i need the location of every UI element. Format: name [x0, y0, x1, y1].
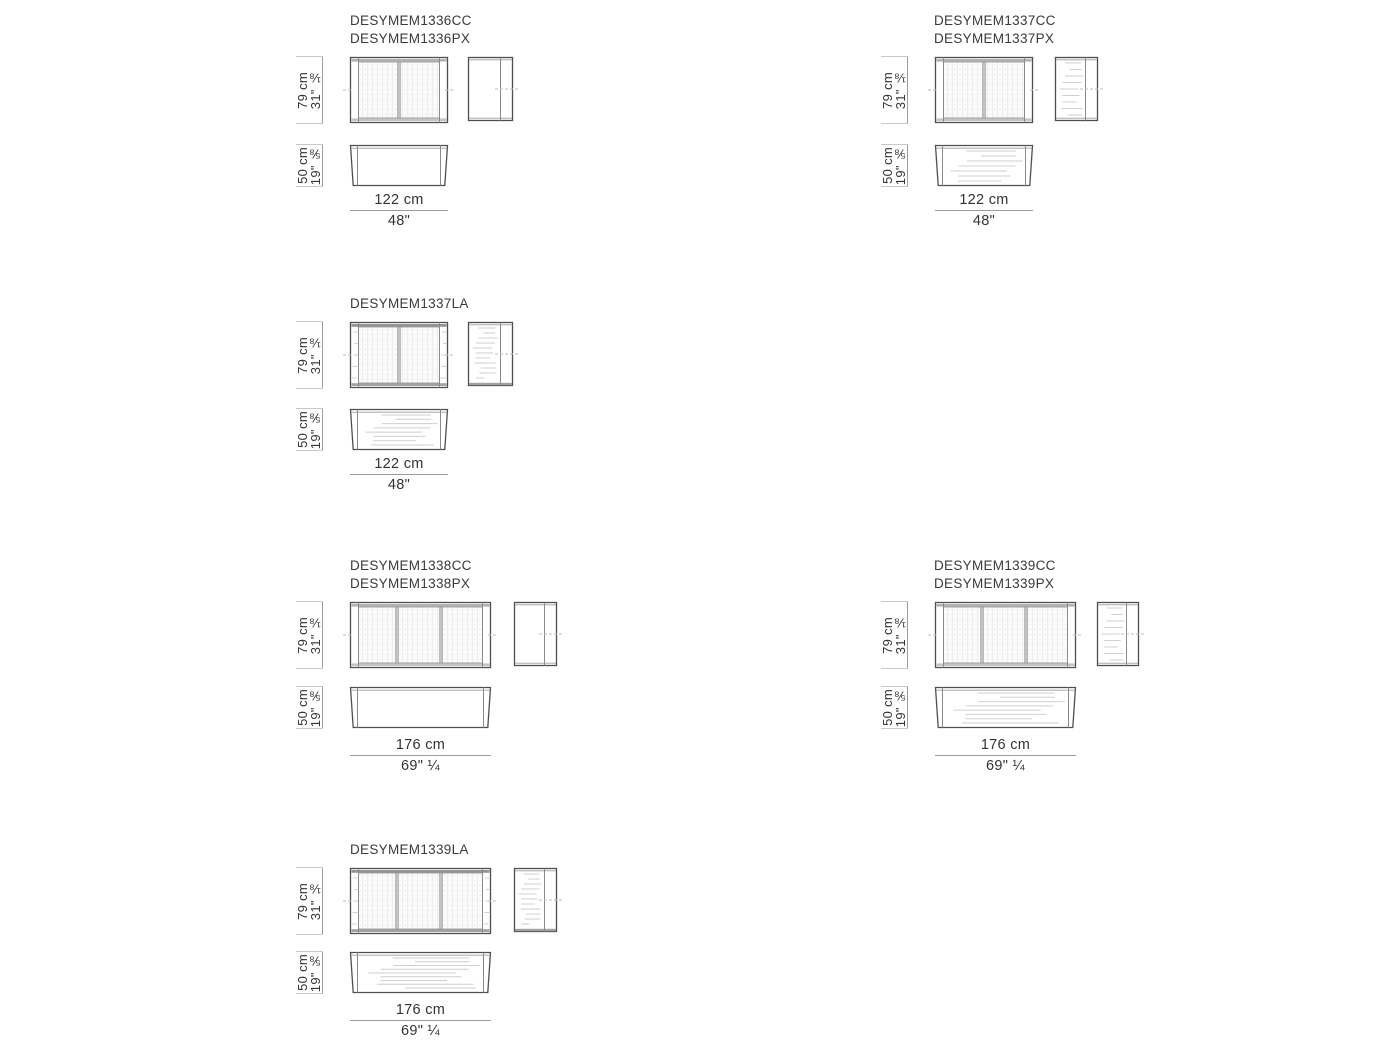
product-codes: DESYMEM1337CC DESYMEM1337PX: [934, 12, 1056, 48]
product-code: DESYMEM1337LA: [350, 295, 469, 313]
dimension-line: [907, 602, 908, 668]
top-view-drawing: [350, 409, 448, 450]
width-dimension: 176 cm 69" ¼: [350, 1002, 491, 1040]
height-in-label: 31" ⅛: [308, 70, 321, 109]
height-cm-label: 79 cm: [880, 617, 893, 654]
width-dimension: 122 cm 48": [350, 456, 448, 494]
depth-in-label: 19" ⅝: [893, 688, 906, 727]
depth-dimension: 50 cm 19" ⅝: [880, 687, 908, 728]
dimension-line: [350, 1020, 491, 1021]
top-view-drawing: [935, 687, 1076, 728]
dimension-line: [935, 755, 1076, 756]
product-code: DESYMEM1336CC: [350, 12, 472, 30]
depth-dimension: 50 cm 19" ⅝: [295, 409, 323, 450]
dimension-line: [322, 322, 323, 388]
product-code: DESYMEM1339PX: [934, 575, 1056, 593]
width-cm-label: 122 cm: [350, 456, 448, 473]
width-in-label: 48": [350, 213, 448, 230]
height-in-label: 31" ⅛: [308, 881, 321, 920]
product-code: DESYMEM1337PX: [934, 30, 1056, 48]
product-code: DESYMEM1337CC: [934, 12, 1056, 30]
dimension-line: [322, 145, 323, 186]
front-view-drawing: [350, 57, 448, 123]
height-dimension: 79 cm 31" ⅛: [880, 602, 908, 668]
depth-in-label: 19" ⅝: [893, 146, 906, 185]
front-view-drawing: [350, 868, 491, 934]
width-cm-label: 122 cm: [935, 192, 1033, 209]
product-codes: DESYMEM1336CC DESYMEM1336PX: [350, 12, 472, 48]
depth-dimension: 50 cm 19" ⅝: [295, 145, 323, 186]
depth-dimension: 50 cm 19" ⅝: [295, 952, 323, 993]
depth-cm-label: 50 cm: [295, 954, 308, 991]
dimension-line: [907, 57, 908, 123]
height-cm-label: 79 cm: [295, 72, 308, 109]
height-cm-label: 79 cm: [295, 617, 308, 654]
depth-cm-label: 50 cm: [880, 689, 893, 726]
dimension-line: [322, 868, 323, 934]
height-dimension: 79 cm 31" ⅛: [295, 322, 323, 388]
front-view-drawing: [935, 602, 1076, 668]
product-code: DESYMEM1336PX: [350, 30, 472, 48]
width-in-label: 69" ¼: [350, 758, 491, 775]
width-in-label: 48": [935, 213, 1033, 230]
spec-sheet: DESYMEM1336CC DESYMEM1336PX: [0, 0, 1400, 1050]
dimension-line: [350, 474, 448, 475]
height-in-label: 31" ⅛: [893, 615, 906, 654]
side-view-drawing: [468, 322, 513, 386]
height-cm-label: 79 cm: [880, 72, 893, 109]
width-in-label: 69" ¼: [350, 1023, 491, 1040]
height-dimension: 79 cm 31" ⅛: [295, 57, 323, 123]
height-cm-label: 79 cm: [295, 337, 308, 374]
product-codes: DESYMEM1338CC DESYMEM1338PX: [350, 557, 472, 593]
product-codes: DESYMEM1339LA: [350, 823, 469, 859]
width-dimension: 176 cm 69" ¼: [350, 737, 491, 775]
depth-cm-label: 50 cm: [295, 411, 308, 448]
product-codes: DESYMEM1337LA: [350, 277, 469, 313]
depth-dimension: 50 cm 19" ⅝: [295, 687, 323, 728]
depth-cm-label: 50 cm: [295, 689, 308, 726]
dimension-line: [350, 755, 491, 756]
height-dimension: 79 cm 31" ⅛: [295, 602, 323, 668]
dimension-line: [907, 687, 908, 728]
dimension-line: [322, 57, 323, 123]
height-dimension: 79 cm 31" ⅛: [295, 868, 323, 934]
width-cm-label: 122 cm: [350, 192, 448, 209]
product-code: DESYMEM1338CC: [350, 557, 472, 575]
dimension-line: [322, 602, 323, 668]
front-view-drawing: [350, 322, 448, 388]
dimension-line: [935, 210, 1033, 211]
door-panels: [359, 607, 483, 663]
dimension-line: [322, 409, 323, 450]
side-view-drawing: [468, 57, 513, 121]
door-panels: [944, 607, 1068, 663]
width-cm-label: 176 cm: [350, 737, 491, 754]
height-in-label: 31" ⅛: [308, 615, 321, 654]
side-view-drawing: [1097, 602, 1139, 666]
dimension-line: [350, 210, 448, 211]
height-cm-label: 79 cm: [295, 883, 308, 920]
width-dimension: 122 cm 48": [350, 192, 448, 230]
dimension-line: [322, 952, 323, 993]
side-view-drawing: [1055, 57, 1098, 121]
dimension-line: [322, 687, 323, 728]
depth-cm-label: 50 cm: [880, 147, 893, 184]
width-cm-label: 176 cm: [350, 1002, 491, 1019]
product-code: DESYMEM1339CC: [934, 557, 1056, 575]
width-cm-label: 176 cm: [935, 737, 1076, 754]
side-view-drawing: [514, 602, 557, 666]
side-view-drawing: [514, 868, 557, 932]
top-view-drawing: [935, 145, 1033, 186]
depth-cm-label: 50 cm: [295, 147, 308, 184]
front-view-drawing: [935, 57, 1033, 123]
door-panels: [359, 873, 483, 929]
product-code: DESYMEM1338PX: [350, 575, 472, 593]
height-dimension: 79 cm 31" ⅛: [880, 57, 908, 123]
product-codes: DESYMEM1339CC DESYMEM1339PX: [934, 557, 1056, 593]
front-view-drawing: [350, 602, 491, 668]
depth-in-label: 19" ⅝: [308, 953, 321, 992]
depth-in-label: 19" ⅝: [308, 688, 321, 727]
width-dimension: 176 cm 69" ¼: [935, 737, 1076, 775]
width-dimension: 122 cm 48": [935, 192, 1033, 230]
dimension-line: [907, 145, 908, 186]
top-view-drawing: [350, 687, 491, 728]
top-view-drawing: [350, 145, 448, 186]
product-code: DESYMEM1339LA: [350, 841, 469, 859]
depth-in-label: 19" ⅝: [308, 146, 321, 185]
height-in-label: 31" ⅛: [893, 70, 906, 109]
height-in-label: 31" ⅛: [308, 335, 321, 374]
depth-dimension: 50 cm 19" ⅝: [880, 145, 908, 186]
depth-in-label: 19" ⅝: [308, 410, 321, 449]
width-in-label: 69" ¼: [935, 758, 1076, 775]
top-view-drawing: [350, 952, 491, 993]
width-in-label: 48": [350, 477, 448, 494]
